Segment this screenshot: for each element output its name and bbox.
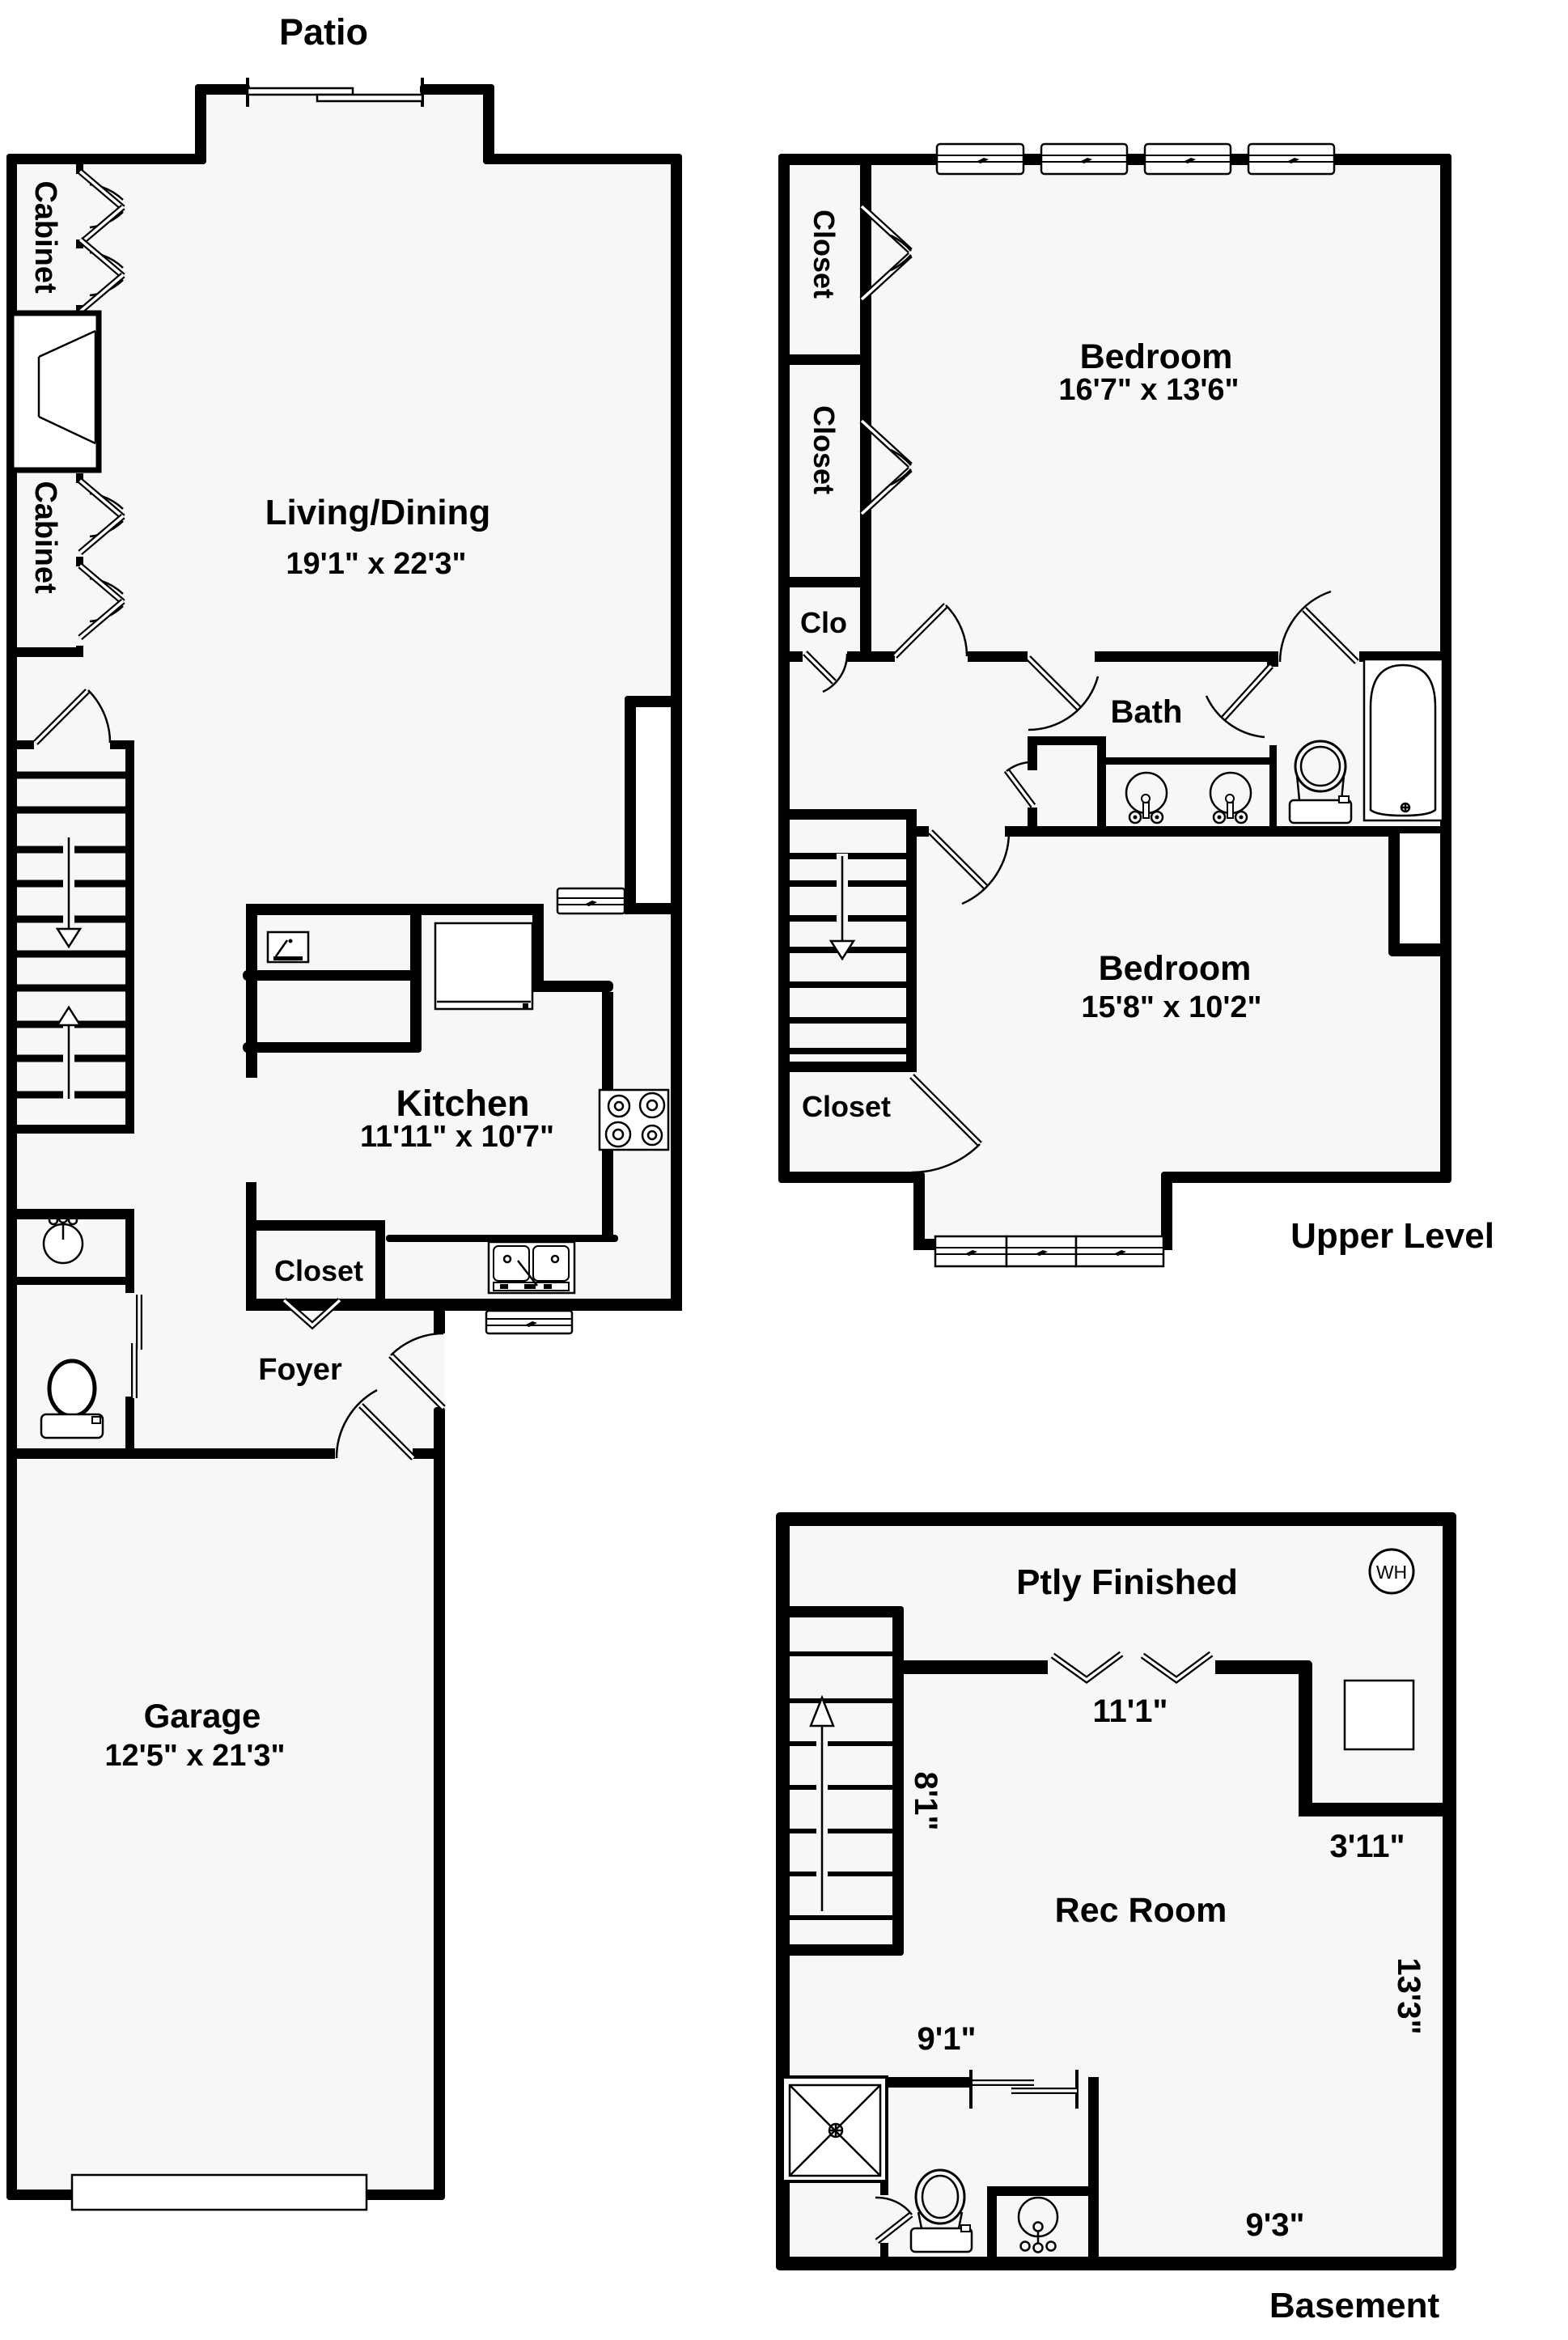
svg-text:Living/Dining: Living/Dining: [265, 493, 491, 532]
svg-text:15'8" x 10'2": 15'8" x 10'2": [1081, 990, 1261, 1024]
svg-text:Closet: Closet: [274, 1254, 363, 1287]
svg-text:Cabinet: Cabinet: [28, 180, 62, 294]
svg-text:9'1": 9'1": [917, 2021, 977, 2057]
svg-text:Basement: Basement: [1269, 2286, 1440, 2325]
svg-text:Closet: Closet: [802, 1090, 891, 1123]
svg-text:11'11" x 10'7": 11'11" x 10'7": [360, 1120, 554, 1154]
svg-text:19'1" x 22'3": 19'1" x 22'3": [286, 547, 466, 581]
svg-text:Ptly Finished: Ptly Finished: [1016, 1562, 1238, 1602]
svg-text:Closet: Closet: [807, 210, 841, 299]
svg-text:WH: WH: [1376, 1562, 1407, 1583]
svg-text:Patio: Patio: [279, 11, 368, 53]
svg-text:Upper Level: Upper Level: [1290, 1216, 1494, 1256]
svg-text:8'1": 8'1": [908, 1772, 943, 1831]
svg-text:Bedroom: Bedroom: [1099, 949, 1252, 988]
svg-text:Garage: Garage: [144, 1697, 261, 1735]
svg-text:Rec Room: Rec Room: [1055, 1891, 1227, 1930]
svg-text:16'7" x 13'6": 16'7" x 13'6": [1058, 373, 1239, 407]
svg-text:Bedroom: Bedroom: [1080, 337, 1233, 376]
svg-text:9'3": 9'3": [1246, 2207, 1305, 2243]
svg-text:13'3": 13'3": [1391, 1957, 1426, 2034]
svg-text:Kitchen: Kitchen: [396, 1083, 529, 1124]
svg-text:Foyer: Foyer: [258, 1353, 342, 1387]
svg-text:Cabinet: Cabinet: [28, 481, 62, 594]
svg-text:Clo: Clo: [800, 606, 847, 639]
svg-text:Closet: Closet: [807, 405, 841, 494]
svg-text:3'11": 3'11": [1329, 1829, 1405, 1864]
svg-text:11'1": 11'1": [1092, 1694, 1168, 1729]
svg-text:Bath: Bath: [1111, 694, 1183, 730]
svg-text:12'5" x 21'3": 12'5" x 21'3": [104, 1739, 285, 1773]
